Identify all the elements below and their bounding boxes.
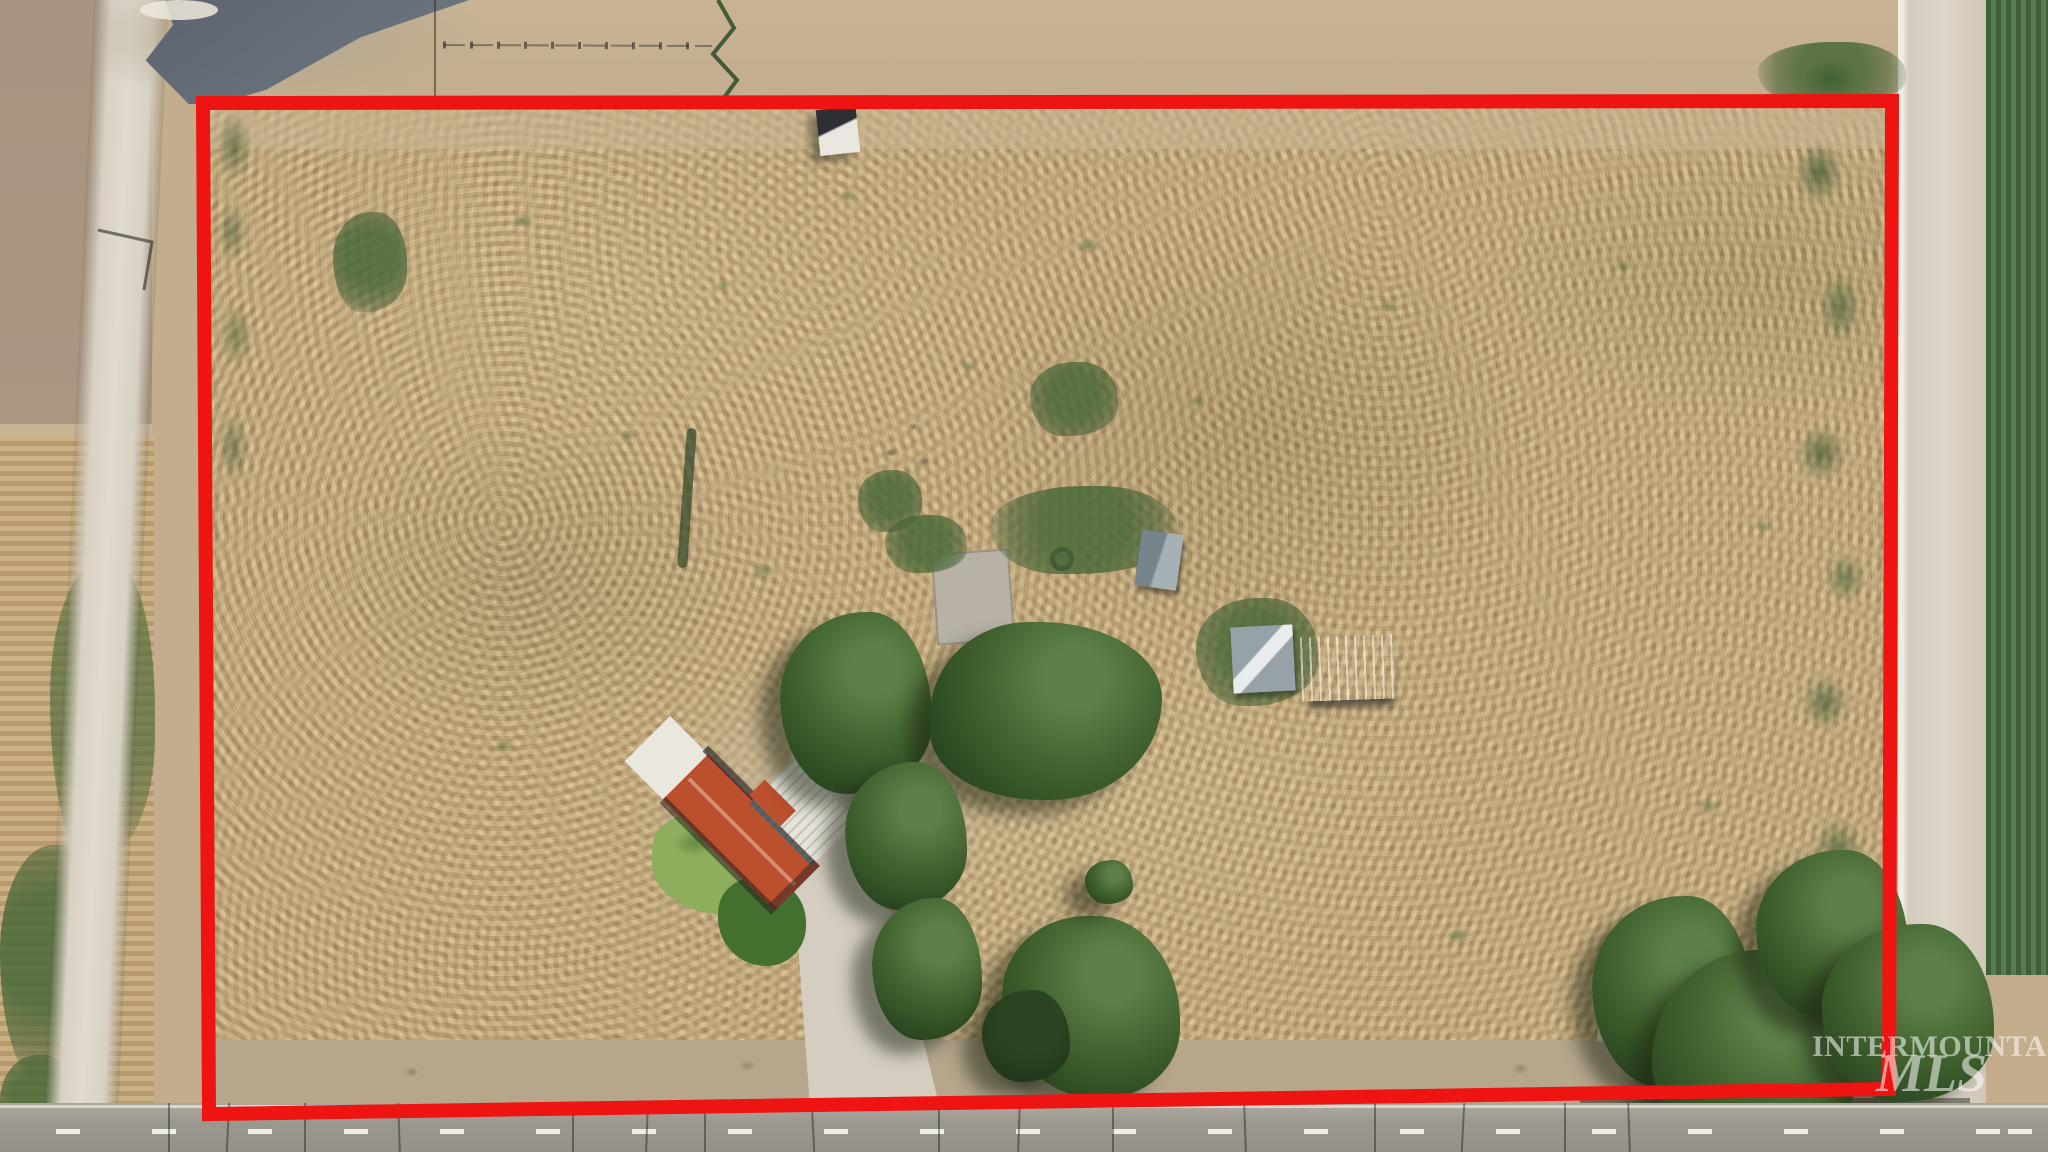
- ditch-zigzag: [713, 0, 737, 103]
- corner-fence: [98, 230, 152, 290]
- property-boundary: [203, 101, 1892, 1114]
- watermark-mls: MLS: [1876, 1042, 1987, 1104]
- fence-rail: [443, 45, 712, 46]
- aerial-property-photo: INTERMOUNTAIN MLS: [0, 0, 2048, 1152]
- annotation-overlay: [0, 0, 2048, 1152]
